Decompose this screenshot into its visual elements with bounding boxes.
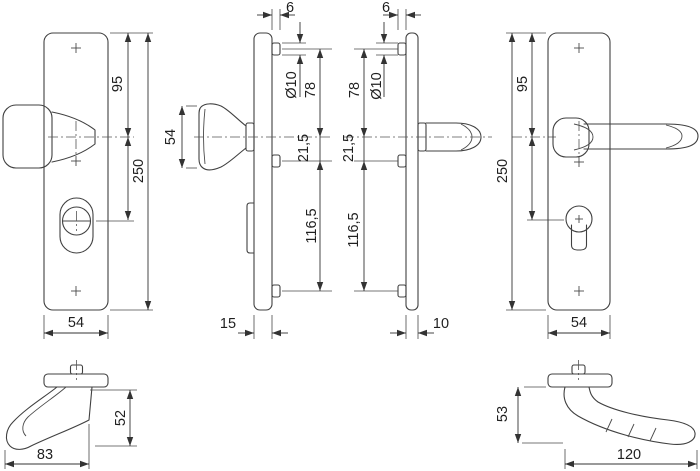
side-view-lever-plate: 6 Ø10 78 21,5 116,5 10 [341, 0, 492, 339]
dim-front-knob-95: 95 [110, 76, 126, 92]
knob-head-front [3, 105, 52, 168]
cylinder-cover-profile [247, 203, 254, 253]
plate-outline [548, 33, 610, 310]
dim-side-knob-15: 15 [220, 316, 236, 332]
knob-profile-contour [204, 109, 206, 164]
dim-side-knob-116-5: 116,5 [304, 208, 320, 243]
knob-grip-outline [6, 387, 92, 449]
dim-front-knob-54: 54 [68, 315, 84, 331]
dim-front-lever-95: 95 [515, 76, 531, 92]
technical-drawing-sheet: 95 250 54 54 [0, 0, 700, 471]
dim-side-knob-54: 54 [163, 129, 179, 145]
screw-cross-top [71, 43, 81, 53]
cylinder-center-cross [575, 215, 583, 223]
dim-front-knob-250: 250 [131, 159, 147, 183]
screw-cross-bottom [71, 286, 81, 296]
dim-side-lever-6: 6 [382, 0, 390, 16]
cylinder-hole-slot [572, 225, 587, 250]
front-view-lever-plate: 250 95 54 [495, 33, 698, 339]
dim-knob-profile-83: 83 [37, 447, 53, 463]
fixing-boss-bottom [272, 285, 280, 297]
knob-grip-contour [23, 387, 66, 436]
rosette-edge [44, 374, 108, 387]
screw-cross-bottom [574, 286, 584, 296]
plate-profile [406, 33, 418, 310]
side-view-knob-plate: 54 6 Ø10 78 21,5 116,5 15 [163, 0, 332, 339]
lever-tip-contour [666, 125, 682, 148]
screw-cross-middle [71, 156, 81, 166]
door-hardware-dimension-drawing: 95 250 54 54 [0, 0, 700, 471]
plate-profile [254, 33, 272, 310]
lever-bar-front [584, 124, 698, 149]
screw-cross-middle [574, 157, 584, 167]
dim-lever-profile-120: 120 [617, 447, 641, 463]
fixing-boss-top [398, 43, 406, 55]
dim-side-knob-d10: Ø10 [284, 71, 300, 98]
dim-side-knob-6: 6 [286, 0, 294, 16]
lever-plan-view: 53 120 [495, 360, 697, 469]
dim-side-lever-d10: Ø10 [369, 72, 385, 99]
dim-front-lever-54: 54 [571, 315, 587, 331]
lever-shoulder-contour [574, 124, 593, 150]
lever-grip-ridges [606, 419, 656, 441]
fixing-boss-bottom [398, 285, 406, 297]
dim-side-lever-78: 78 [347, 82, 363, 98]
front-view-knob-plate: 95 250 54 [3, 33, 153, 339]
rosette-edge [548, 374, 612, 387]
dim-side-knob-78: 78 [303, 82, 319, 98]
dim-side-lever-116-5: 116,5 [346, 212, 362, 247]
plate-outline [44, 33, 108, 310]
screw-cross-top [574, 43, 584, 53]
fixing-boss-middle [272, 155, 280, 167]
lever-grip-outline [564, 387, 695, 444]
fixing-boss-top [272, 43, 280, 55]
dim-side-lever-21-5: 21,5 [341, 134, 357, 162]
dim-side-knob-21-5: 21,5 [296, 134, 312, 162]
knob-plan-view: 52 83 [5, 360, 137, 469]
dim-knob-profile-52: 52 [113, 410, 129, 426]
dim-front-lever-250: 250 [495, 159, 511, 183]
fixing-boss-middle [398, 155, 406, 167]
dim-side-lever-10: 10 [433, 316, 449, 332]
dim-lever-profile-53: 53 [495, 406, 511, 422]
